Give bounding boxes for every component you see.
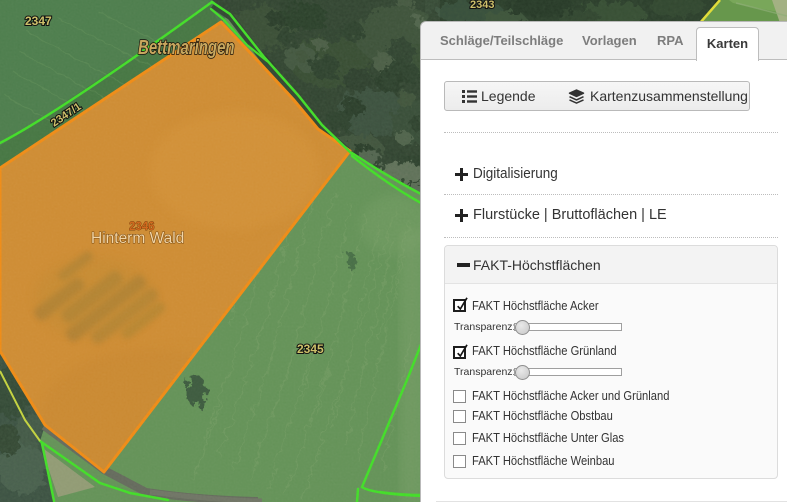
svg-text:2345: 2345 <box>297 342 324 356</box>
svg-text:2347: 2347 <box>25 14 52 28</box>
svg-text:2343: 2343 <box>470 0 494 11</box>
svg-text:Hinterm Wald: Hinterm Wald <box>91 230 184 247</box>
svg-text:Bettmaringen: Bettmaringen <box>138 36 235 59</box>
